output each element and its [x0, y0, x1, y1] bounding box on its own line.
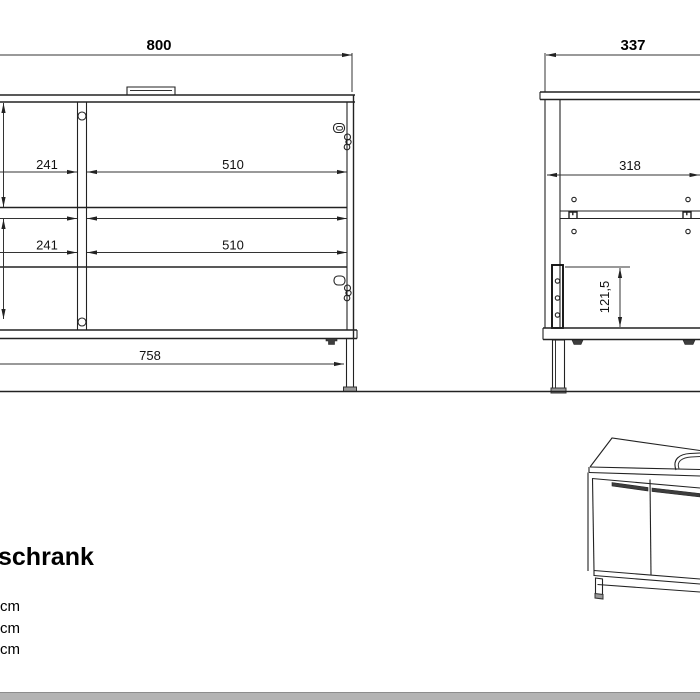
front-view-drawing: 800 241 510 — [0, 37, 357, 392]
product-spec-list: cm cm cm — [0, 596, 94, 661]
hinge-detail-bottom — [334, 276, 351, 301]
side-inner-depth-dim-label: 318 — [619, 158, 641, 173]
dimension-drawing: 800 241 510 — [0, 0, 700, 700]
front-plinth-dim-label: 758 — [139, 348, 161, 363]
spec-line: cm — [0, 639, 94, 661]
front-lower-left-dim-label: 241 — [36, 238, 58, 253]
product-title-fragment: schrank — [0, 543, 94, 572]
technical-drawing-page: 800 241 510 — [0, 0, 700, 700]
isometric-product-view — [588, 438, 700, 599]
product-info-block: schrank cm cm cm — [0, 543, 94, 661]
front-upper-right-dim-label: 510 — [222, 157, 244, 172]
hinge-detail-top — [334, 124, 352, 150]
side-strip-height-dim-label: 121,5 — [597, 281, 612, 314]
side-depth-dim-label: 337 — [620, 37, 645, 54]
front-width-dim-label: 800 — [146, 37, 171, 54]
front-lower-right-dim-label: 510 — [222, 238, 244, 253]
door-handle-left — [612, 483, 648, 492]
door-handle-right — [652, 488, 700, 497]
front-upper-left-dim-label: 241 — [36, 157, 58, 172]
spec-line: cm — [0, 618, 94, 640]
side-view-drawing: 337 318 121,5 — [540, 37, 700, 393]
spec-line: cm — [0, 596, 94, 618]
footer-divider-bar — [0, 692, 700, 700]
